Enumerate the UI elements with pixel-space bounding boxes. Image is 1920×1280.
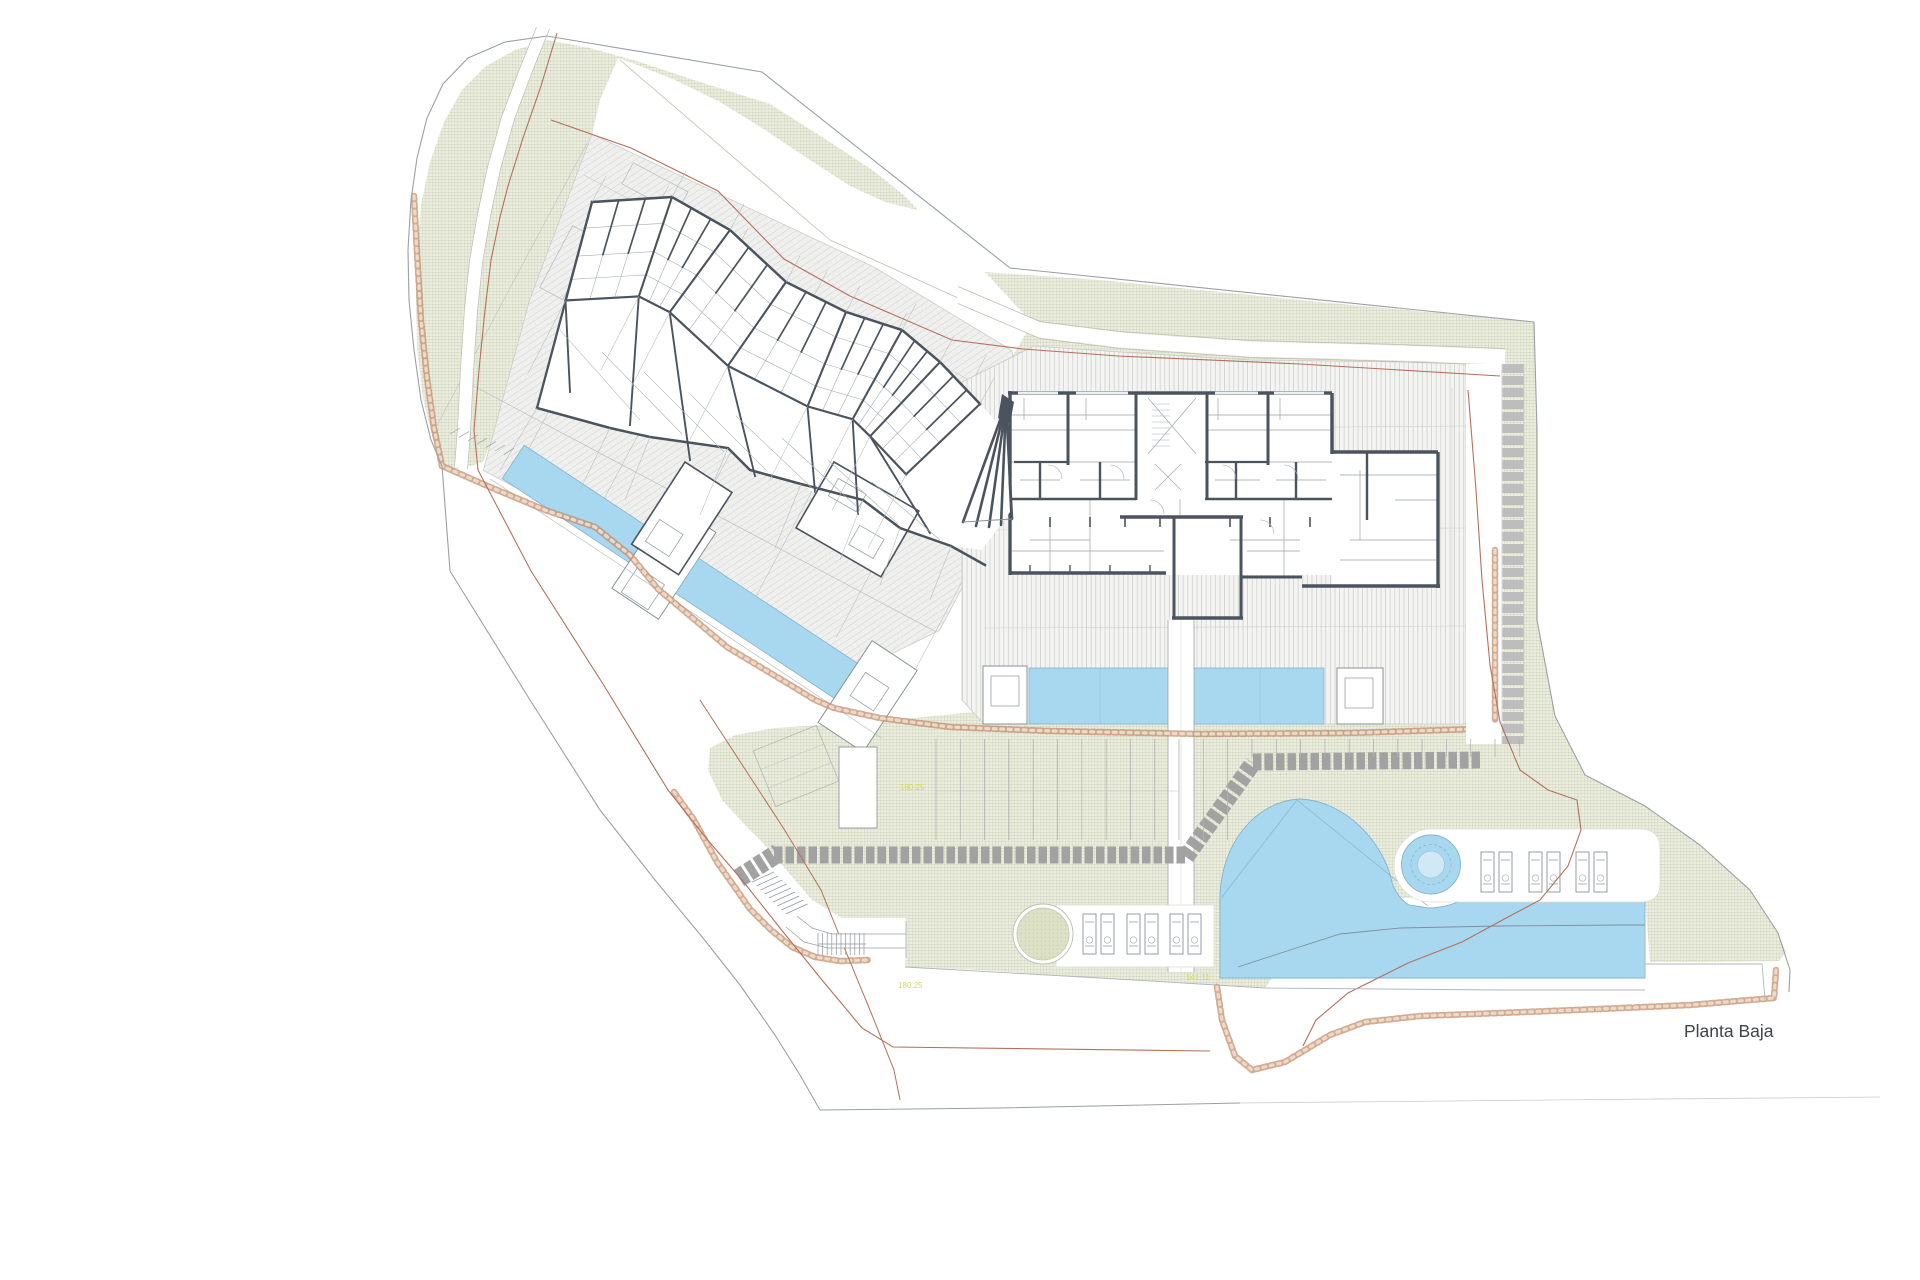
svg-text:Planta Baja: Planta Baja xyxy=(1684,1021,1774,1041)
svg-text:180.25: 180.25 xyxy=(898,981,923,990)
svg-text:180.25: 180.25 xyxy=(900,783,925,792)
svg-text:141.11: 141.11 xyxy=(1186,973,1210,982)
